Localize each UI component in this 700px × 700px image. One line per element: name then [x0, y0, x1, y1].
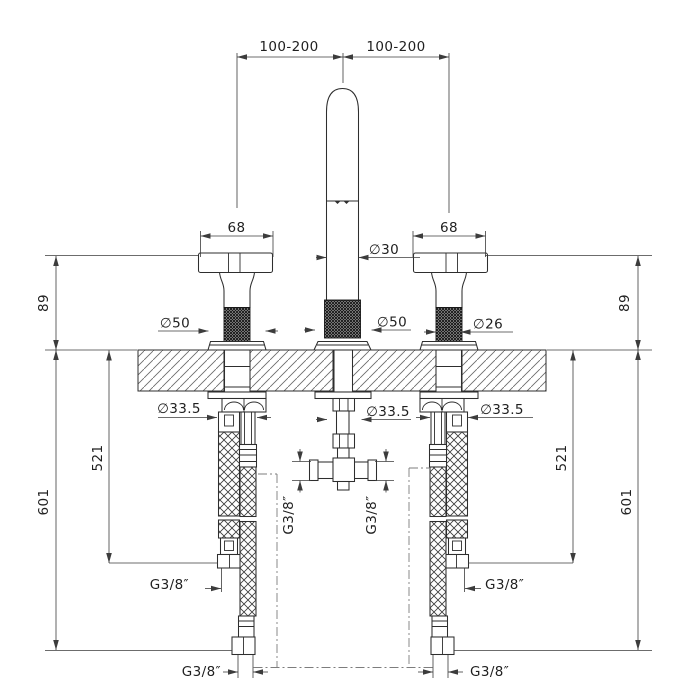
dim-tee-port-left: G3/8″: [281, 449, 311, 535]
right-valve-assembly: [414, 253, 488, 655]
dim-label-handle-stem-diameter: ∅26: [473, 317, 503, 333]
left-valve-assembly: [199, 253, 273, 655]
dim-label-spacing-right: 100-200: [366, 39, 425, 55]
dim-label-hose-drop-left: 521: [90, 445, 106, 472]
dim-label-spout-diameter: ∅30: [369, 242, 399, 258]
dim-label-supply-thread-right: G3/8″: [470, 664, 509, 680]
dim-label-shank-diameter-left: ∅33.5: [157, 401, 201, 417]
dim-height-left: 89 601 521: [36, 256, 232, 651]
dim-label-hose-drop-right: 521: [554, 445, 570, 472]
dim-label-handle-flange-diameter: ∅50: [160, 316, 190, 332]
dim-handle-flange-diameter: ∅50: [158, 316, 278, 332]
spout-washer: [315, 392, 371, 399]
dim-label-handle-width-left: 68: [228, 220, 246, 236]
dim-label-spout-flange-diameter: ∅50: [377, 315, 407, 331]
dim-label-height-right: 89: [617, 294, 633, 312]
spout-inlet-tube: [337, 411, 350, 434]
dim-label-tee-port-right: G3/8″: [364, 495, 380, 534]
spout-flange: [314, 342, 371, 351]
dim-label-spacing-left: 100-200: [259, 39, 318, 55]
dim-label-handle-width-right: 68: [440, 220, 458, 236]
spout-knurled-base: [325, 300, 361, 338]
dim-handle-width-right: 68: [413, 220, 486, 257]
spout-shank: [334, 350, 353, 392]
dim-label-supply-thread-left: G3/8″: [182, 664, 221, 680]
dim-shank-diameter-center: ∅33.5: [316, 404, 411, 420]
tee-coupling-nut: [333, 434, 355, 448]
dim-outlet-thread-right: G3/8″: [465, 568, 525, 593]
dim-label-shank-diameter-center: ∅33.5: [366, 404, 410, 420]
dim-label-outlet-thread-right: G3/8″: [485, 577, 524, 593]
dim-label-tee-port-left: G3/8″: [281, 495, 297, 534]
dim-handle-width-left: 68: [201, 220, 274, 257]
dim-label-shank-diameter-right: ∅33.5: [480, 402, 524, 418]
dim-label-outlet-thread-left: G3/8″: [150, 577, 189, 593]
spout-mounting-nut: [333, 399, 355, 412]
dim-label-hose-length-left: 601: [36, 489, 52, 516]
dim-outlet-thread-left: G3/8″: [150, 568, 222, 593]
faucet-installation-drawing: 100-200 100-200 68 68 89 601 521: [0, 0, 700, 700]
technical-drawing-canvas: 100-200 100-200 68 68 89 601 521: [0, 0, 700, 700]
spout-assembly: [310, 89, 377, 491]
spout-body: [327, 89, 359, 301]
dim-label-hose-length-right: 601: [619, 489, 635, 516]
tee-connector: [310, 458, 377, 490]
dim-height-right: 89 601 521: [454, 256, 652, 651]
dim-label-height-left: 89: [36, 294, 52, 312]
dim-spacing-right: 100-200: [343, 39, 449, 57]
